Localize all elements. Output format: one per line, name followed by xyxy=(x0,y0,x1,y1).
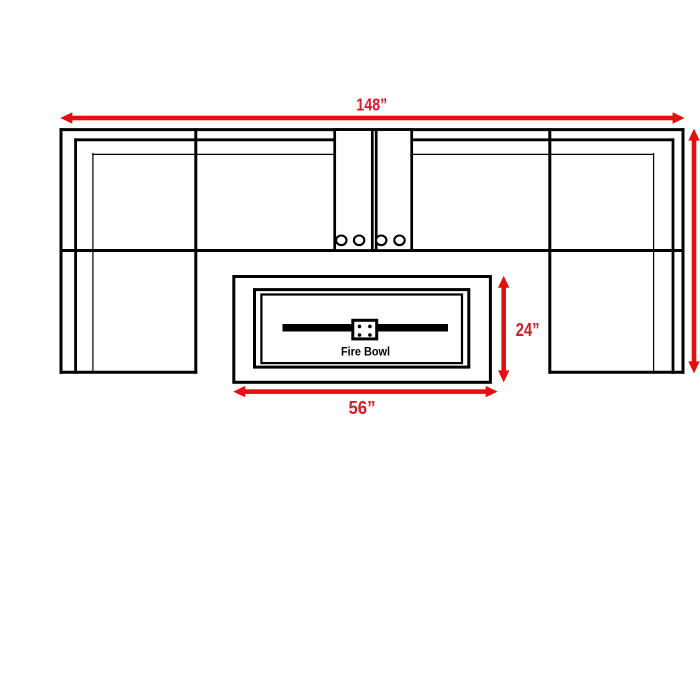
svg-text:56”: 56” xyxy=(349,398,376,418)
svg-text:148”: 148” xyxy=(356,95,387,115)
svg-text:Fire Bowl: Fire Bowl xyxy=(341,347,390,359)
svg-text:24”: 24” xyxy=(516,320,540,340)
